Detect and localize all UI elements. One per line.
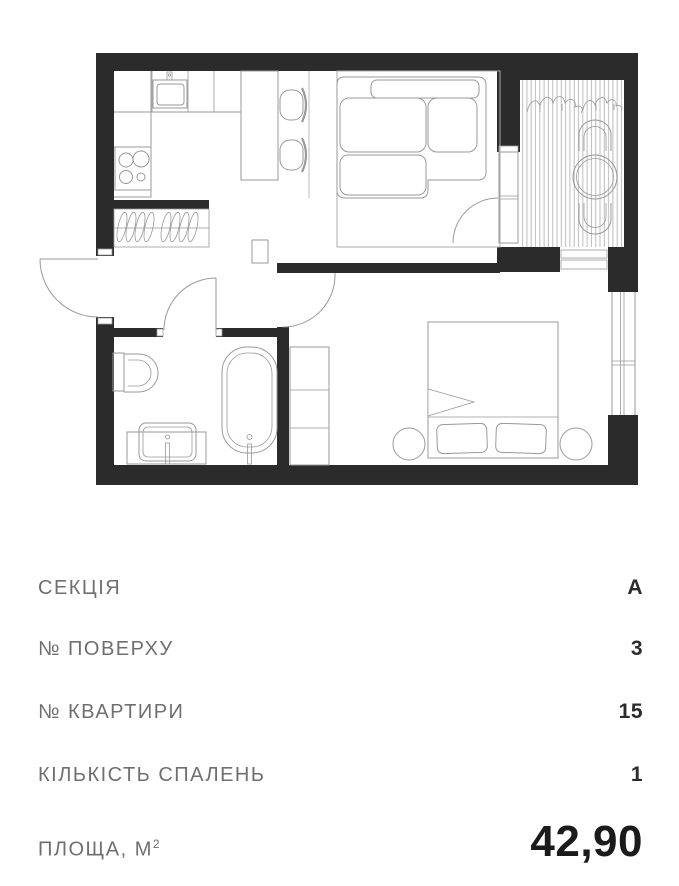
apartment-card: СЕКЦІЯ А № ПОВЕРХУ 3 № КВАРТИРИ 15 КІЛЬК… xyxy=(0,0,679,886)
wall-segment xyxy=(114,200,209,209)
apartment-number-value: 15 xyxy=(619,700,643,724)
entry-door xyxy=(40,259,98,317)
area-label: ПЛОЩА, М2 xyxy=(38,837,160,862)
kitchen-counter xyxy=(114,71,241,197)
bathtub xyxy=(222,347,277,464)
bedrooms-label: КІЛЬКІСТЬ СПАЛЕНЬ xyxy=(38,764,265,787)
pillow xyxy=(437,423,488,454)
wall-segment xyxy=(624,53,638,247)
section-label: СЕКЦІЯ xyxy=(38,577,121,600)
floorplan-drawing xyxy=(0,0,679,510)
wall-segment xyxy=(114,328,163,337)
detail-row-area: ПЛОЩА, М2 42,90 xyxy=(38,820,643,864)
section-value: А xyxy=(627,576,643,600)
double-bed xyxy=(428,322,558,458)
wall-segment xyxy=(520,53,638,80)
wall-segment xyxy=(96,53,114,256)
wall-segment xyxy=(277,263,500,273)
area-label-superscript: 2 xyxy=(153,837,160,851)
balcony-deck xyxy=(521,80,624,247)
wall-segment xyxy=(608,247,638,292)
area-value: 42,90 xyxy=(530,820,643,864)
wall-segment xyxy=(497,247,560,272)
sofa xyxy=(337,77,486,198)
pillow xyxy=(495,423,546,454)
floor-value: 3 xyxy=(631,637,643,661)
floor-label: № ПОВЕРХУ xyxy=(38,638,174,661)
stove xyxy=(115,147,151,190)
dining-chairs xyxy=(280,88,306,172)
wall-segment xyxy=(216,328,277,337)
kitchen-sink xyxy=(153,72,187,108)
toilet xyxy=(113,353,158,392)
coat-rack xyxy=(114,209,209,247)
detail-row-apartment-number: № КВАРТИРИ 15 xyxy=(38,700,643,724)
wall-segment xyxy=(96,53,497,71)
wall-segment xyxy=(277,327,289,467)
nightstand-left xyxy=(393,428,425,460)
bedroom-window xyxy=(612,292,635,415)
nightstand-right xyxy=(560,428,592,460)
apartment-number-label: № КВАРТИРИ xyxy=(38,701,184,724)
wardrobe xyxy=(290,347,329,465)
wall-segment xyxy=(96,317,114,485)
wall-segment xyxy=(96,465,638,485)
bathroom-door xyxy=(164,278,216,330)
shoe-cabinet xyxy=(252,240,268,263)
detail-row-floor: № ПОВЕРХУ 3 xyxy=(38,637,643,661)
detail-row-bedrooms: КІЛЬКІСТЬ СПАЛЕНЬ 1 xyxy=(38,763,643,787)
dining-table xyxy=(241,71,278,180)
balcony-window xyxy=(561,250,607,269)
vanity-sink xyxy=(127,423,206,464)
bedrooms-value: 1 xyxy=(631,763,643,787)
hanger-icons xyxy=(115,211,200,242)
bedroom-door xyxy=(283,273,335,327)
detail-row-section: СЕКЦІЯ А xyxy=(38,576,643,600)
wall-segment xyxy=(608,415,638,485)
